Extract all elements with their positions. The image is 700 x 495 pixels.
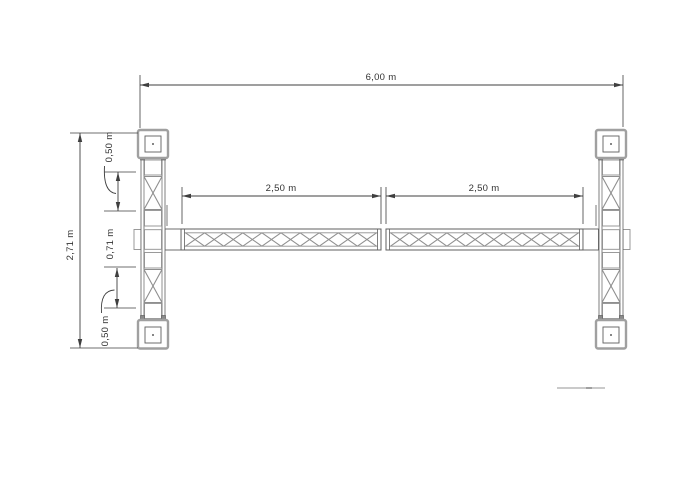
dimension-label-upper-segment: 0,50 m — [104, 132, 115, 163]
truss-technical-drawing: 6,00 m 2,50 m 2,50 m 2,71 m 0,50 m 0,71 … — [0, 0, 700, 495]
dimension-label-total-width: 6,00 m — [366, 72, 397, 83]
dimension-label-lower-segment: 0,50 m — [100, 316, 111, 347]
dimension-label-left-span: 2,50 m — [266, 183, 297, 194]
dimension-label-total-height: 2,71 m — [65, 230, 76, 261]
horizontal-truss — [134, 205, 630, 250]
left-truss-tower — [138, 130, 168, 349]
dimension-label-right-span: 2,50 m — [469, 183, 500, 194]
leader-upper-segment — [104, 166, 116, 194]
right-truss-tower — [596, 130, 626, 349]
leader-lower-segment — [101, 290, 114, 313]
drawing-canvas: 6,00 m 2,50 m 2,50 m 2,71 m 0,50 m 0,71 … — [0, 0, 700, 495]
dimension-label-middle-segment: 0,71 m — [105, 229, 116, 260]
